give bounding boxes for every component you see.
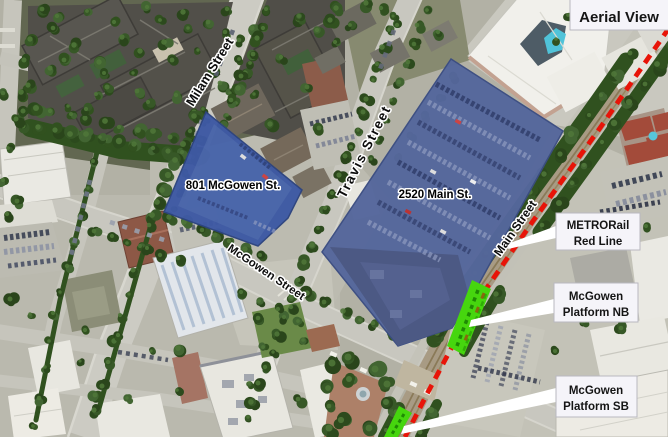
svg-text:Platform NB: Platform NB [563,307,629,319]
svg-text:2520 Main St.: 2520 Main St. [399,189,472,201]
svg-text:McGowen: McGowen [569,291,623,303]
svg-text:Platform SB: Platform SB [563,401,629,413]
svg-text:Red Line: Red Line [574,236,623,248]
svg-text:McGowen: McGowen [569,385,623,397]
svg-text:METRORail: METRORail [567,220,630,232]
svg-text:801 McGowen St.: 801 McGowen St. [186,180,281,192]
svg-text:Aerial View: Aerial View [579,9,659,26]
